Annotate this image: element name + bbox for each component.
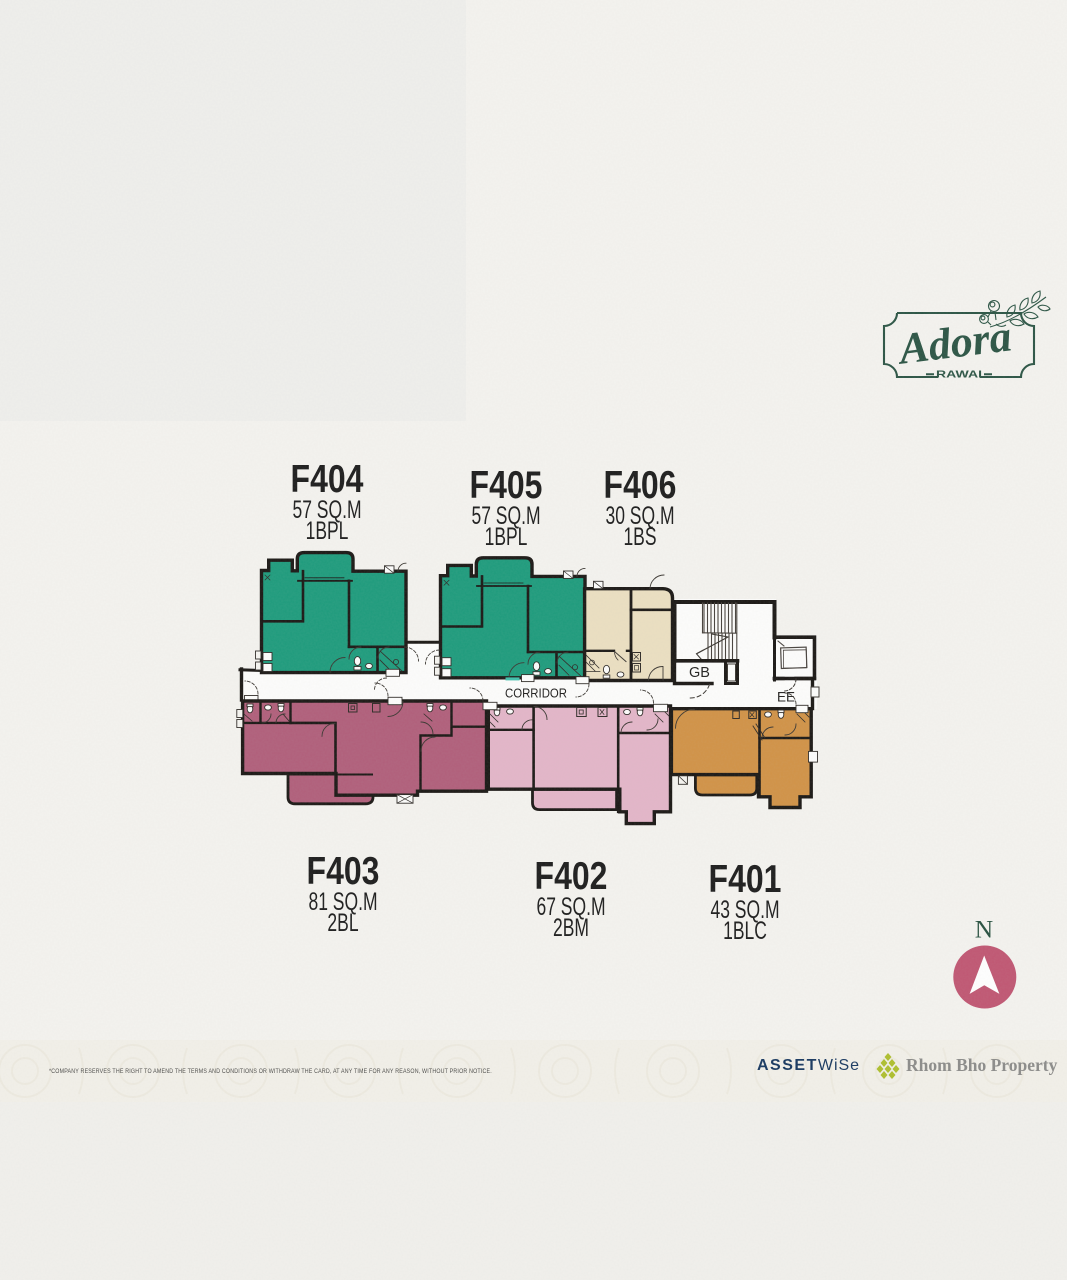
svg-text:CORRIDOR: CORRIDOR — [505, 686, 567, 701]
svg-text:RAWAI: RAWAI — [936, 370, 982, 381]
svg-text:EE: EE — [777, 690, 795, 705]
svg-text:N: N — [975, 915, 993, 944]
svg-text:Adora: Adora — [894, 311, 1015, 374]
svg-text:GB: GB — [689, 665, 710, 681]
